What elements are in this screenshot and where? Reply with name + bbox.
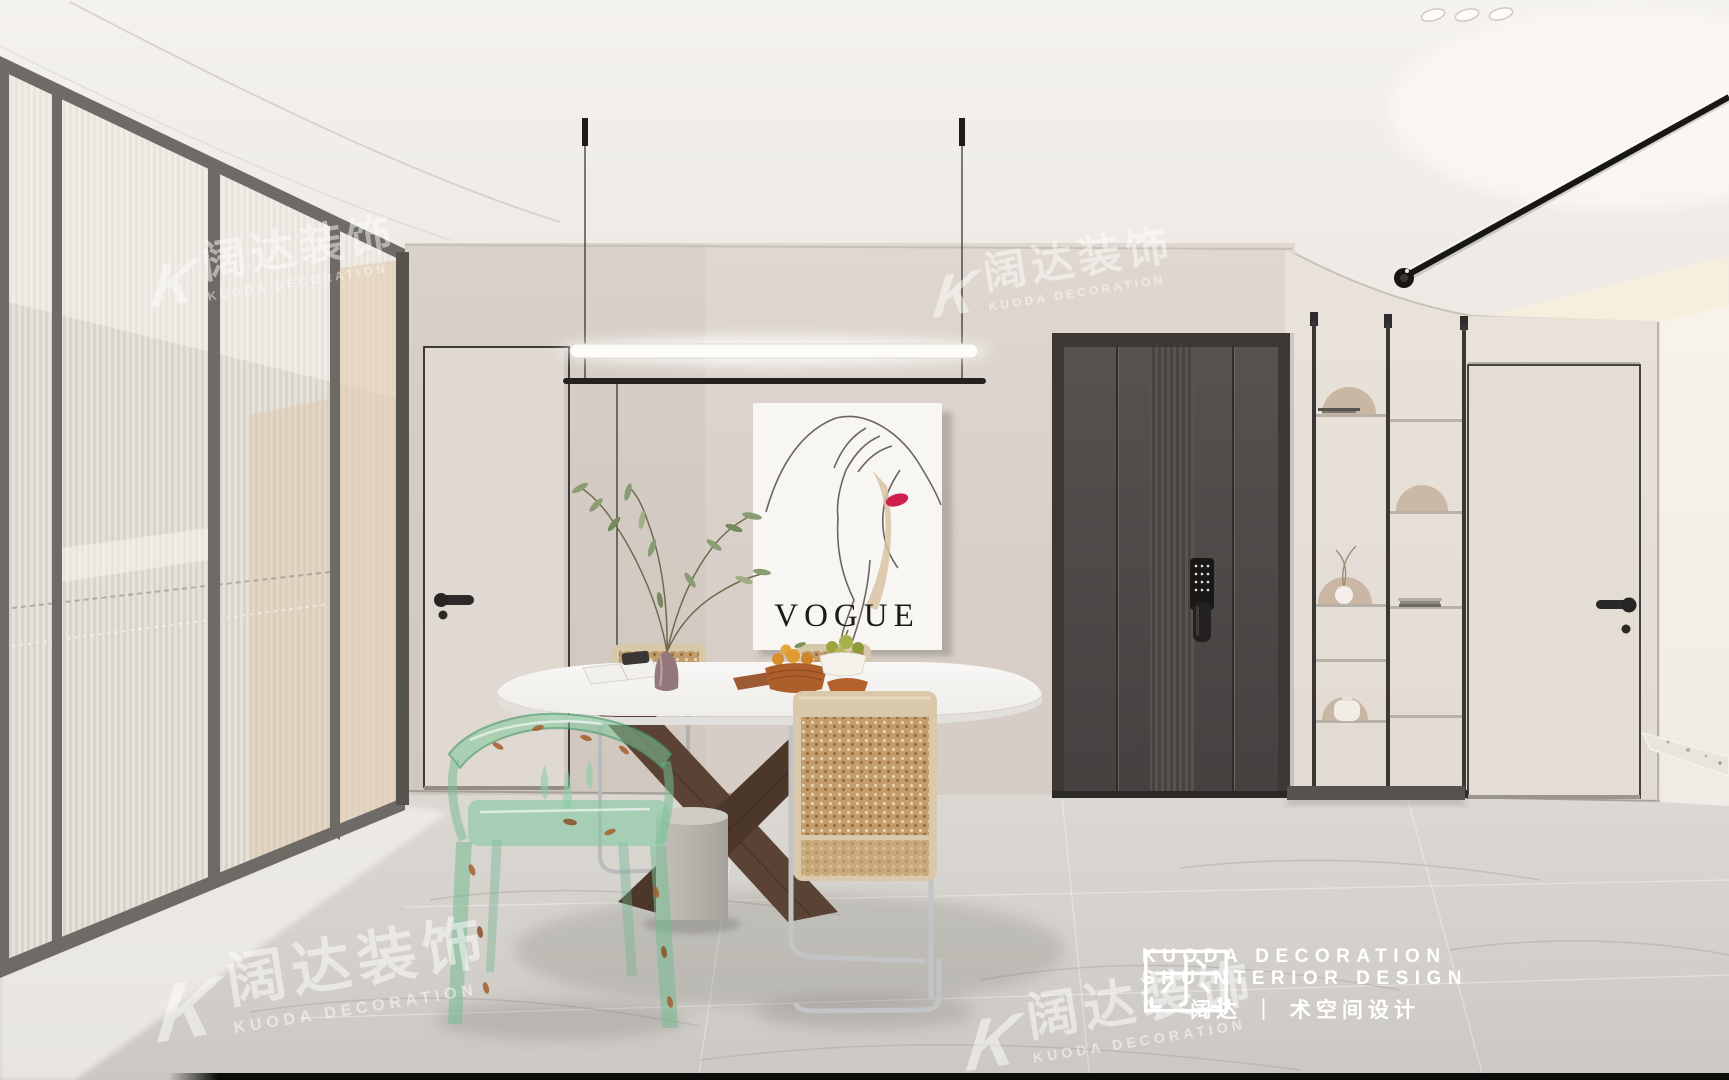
- kuoda-logo-mark-icon: [1142, 946, 1230, 1016]
- curtain-behind-glass: [340, 260, 398, 838]
- poster-title: VOGUE: [774, 598, 919, 634]
- led-tube: [570, 344, 978, 358]
- right-door: [1468, 363, 1640, 799]
- interior-rendering: VOGUE: [0, 0, 1729, 1080]
- door-fluted-panel: [1150, 347, 1194, 791]
- dark-entry-door: [1052, 333, 1294, 798]
- curtain-behind-glass: [250, 398, 332, 862]
- bottom-border-strip: [168, 1073, 1729, 1080]
- pendant-bar: [563, 378, 986, 384]
- smart-lock: [1190, 558, 1214, 642]
- shelf-plinth: [1287, 786, 1465, 800]
- scene-graphic: VOGUE: [0, 0, 1729, 1080]
- vogue-poster: VOGUE: [753, 403, 952, 656]
- kuoda-logo: KUODA DECORATION SHU NTERIOR DESIGN 阔达 ｜…: [1142, 946, 1468, 1024]
